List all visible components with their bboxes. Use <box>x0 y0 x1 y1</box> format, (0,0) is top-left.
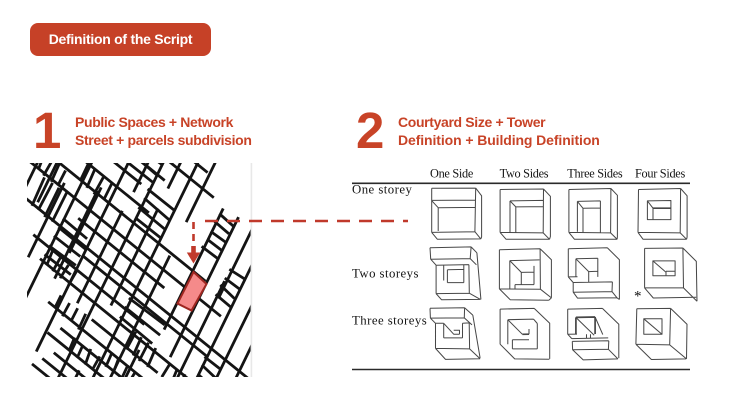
svg-text:*: * <box>634 289 642 305</box>
svg-text:Two storeys: Two storeys <box>352 267 419 281</box>
svg-text:Four Sides: Four Sides <box>635 166 685 180</box>
svg-text:One Side: One Side <box>430 166 474 180</box>
svg-text:Two Sides: Two Sides <box>500 166 549 180</box>
svg-text:Three Sides: Three Sides <box>567 166 623 180</box>
svg-text:Three storeys: Three storeys <box>352 314 427 328</box>
svg-text:One storey: One storey <box>352 183 412 197</box>
